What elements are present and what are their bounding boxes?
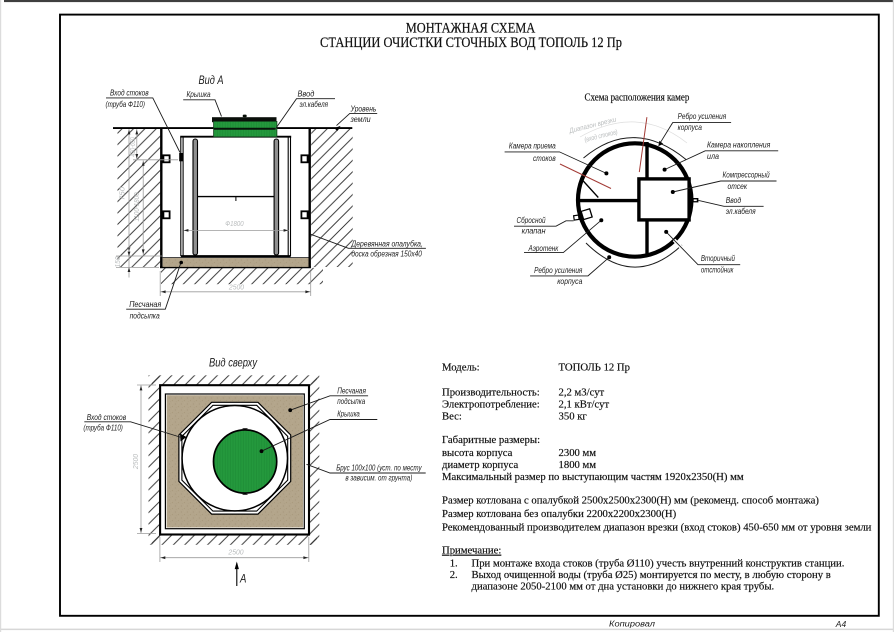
svg-text:1.: 1. — [450, 558, 458, 570]
svg-text:ТОПОЛЬ 12 Пр: ТОПОЛЬ 12 Пр — [559, 361, 631, 373]
svg-text:750: 750 — [120, 187, 127, 201]
svg-text:Производительность:: Производительность: — [442, 386, 540, 398]
svg-text:Камера накопления: Камера накопления — [707, 139, 771, 149]
svg-text:Камера приема: Камера приема — [509, 141, 556, 151]
svg-text:диапазоне 2050-2100 мм от дна: диапазоне 2050-2100 мм от дна установки … — [472, 581, 775, 593]
svg-text:350 кг: 350 кг — [559, 411, 588, 423]
svg-text:эл.кабеля: эл.кабеля — [726, 206, 756, 216]
svg-text:отсек: отсек — [728, 181, 748, 191]
svg-text:(труба Ф110): (труба Ф110) — [106, 99, 146, 109]
svg-text:2300 мм: 2300 мм — [559, 447, 597, 459]
svg-text:Ввод: Ввод — [298, 88, 315, 98]
svg-text:стоков: стоков — [533, 153, 556, 163]
svg-text:Песчаная: Песчаная — [337, 385, 366, 395]
svg-text:Модель:: Модель: — [442, 361, 480, 373]
svg-text:1800 мм: 1800 мм — [559, 459, 597, 471]
svg-text:2500: 2500 — [133, 454, 140, 470]
svg-text:Вид сверху: Вид сверху — [209, 356, 258, 369]
svg-text:в зависим. от грунта): в зависим. от грунта) — [345, 473, 412, 483]
svg-text:корпуса: корпуса — [557, 276, 582, 286]
svg-text:Примечание:: Примечание: — [442, 545, 501, 557]
svg-text:(труба Ф110): (труба Ф110) — [83, 423, 123, 433]
svg-text:Размер котлована с опалубкой 2: Размер котлована с опалубкой 2500х2500х2… — [442, 494, 819, 506]
svg-text:подсыпка: подсыпка — [130, 311, 160, 321]
svg-text:450-650: 450-650 — [130, 137, 137, 157]
svg-text:А4: А4 — [835, 619, 847, 629]
svg-text:доска обрезная 150х40: доска обрезная 150х40 — [351, 249, 422, 259]
svg-text:2,2 м3/сут: 2,2 м3/сут — [559, 386, 605, 398]
svg-text:Габаритные размеры:: Габаритные размеры: — [442, 434, 540, 446]
svg-text:Вторичный: Вторичный — [701, 253, 735, 263]
svg-text:При монтаже входа стоков (тру: При монтаже входа стоков (труба Ø110) уч… — [472, 558, 845, 570]
svg-text:Вес:: Вес: — [442, 411, 462, 423]
svg-text:высота корпуса: высота корпуса — [442, 447, 513, 459]
svg-text:СТАНЦИИ ОЧИСТКИ СТОЧНЫХ ВОД ТО: СТАНЦИИ ОЧИСТКИ СТОЧНЫХ ВОД ТОПОЛЬ 12 Пр — [320, 35, 622, 51]
svg-text:А: А — [239, 572, 246, 585]
svg-text:Компрессорный: Компрессорный — [723, 169, 770, 179]
svg-text:Ввод: Ввод — [726, 195, 742, 205]
svg-text:Песчаная: Песчаная — [129, 299, 162, 309]
svg-text:эл.кабеля: эл.кабеля — [300, 99, 329, 109]
svg-text:Брус 100х100 (уст. по месту: Брус 100х100 (уст. по месту — [336, 462, 422, 472]
svg-text:150: 150 — [115, 256, 122, 267]
svg-text:Выход очищенной воды (труба Ø2: Выход очищенной воды (труба Ø25) монтиру… — [472, 569, 831, 581]
svg-text:Вид А: Вид А — [198, 74, 223, 87]
svg-text:земли: земли — [350, 114, 371, 124]
svg-text:Схема расположения камер: Схема расположения камер — [585, 91, 690, 103]
svg-text:Ф1800: Ф1800 — [225, 221, 243, 228]
svg-text:Размер котлована без опалубки: Размер котлована без опалубки 2200х2200х… — [442, 508, 677, 520]
svg-text:Рекомендованный производителем: Рекомендованный производителем диапазон … — [442, 521, 872, 533]
svg-text:2500: 2500 — [227, 549, 243, 556]
svg-text:2.: 2. — [450, 569, 458, 581]
svg-text:корпуса: корпуса — [678, 122, 703, 132]
svg-text:2500: 2500 — [228, 285, 244, 292]
svg-text:клапан: клапан — [522, 226, 546, 236]
svg-text:2,1 кВт/сут: 2,1 кВт/сут — [559, 399, 610, 411]
svg-text:Крышка: Крышка — [337, 409, 360, 419]
svg-text:ила: ила — [707, 151, 719, 161]
svg-text:подсыпка: подсыпка — [337, 396, 365, 406]
svg-text:Аэротенк: Аэротенк — [528, 243, 559, 253]
svg-text:Деревянная опалубка,: Деревянная опалубка, — [351, 238, 423, 248]
svg-text:Уровень: Уровень — [350, 104, 377, 114]
svg-text:Ребро усиления: Ребро усиления — [678, 111, 727, 121]
svg-text:Вход стоков: Вход стоков — [87, 412, 127, 422]
svg-text:Крышка: Крышка — [187, 89, 211, 99]
svg-text:Ребро усиления: Ребро усиления — [534, 265, 583, 275]
svg-text:отстойник: отстойник — [701, 265, 734, 275]
svg-text:Вход стоков: Вход стоков — [110, 87, 149, 97]
svg-text:диаметр корпуса: диаметр корпуса — [442, 459, 518, 471]
svg-text:Сбросной: Сбросной — [517, 215, 546, 225]
svg-text:Максимальный размер по выступа: Максимальный размер по выступающим частя… — [442, 471, 744, 483]
svg-text:Копировал: Копировал — [609, 619, 655, 629]
svg-text:Электропотребление:: Электропотребление: — [442, 399, 540, 411]
svg-text:1100-1800: 1100-1800 — [134, 192, 141, 221]
